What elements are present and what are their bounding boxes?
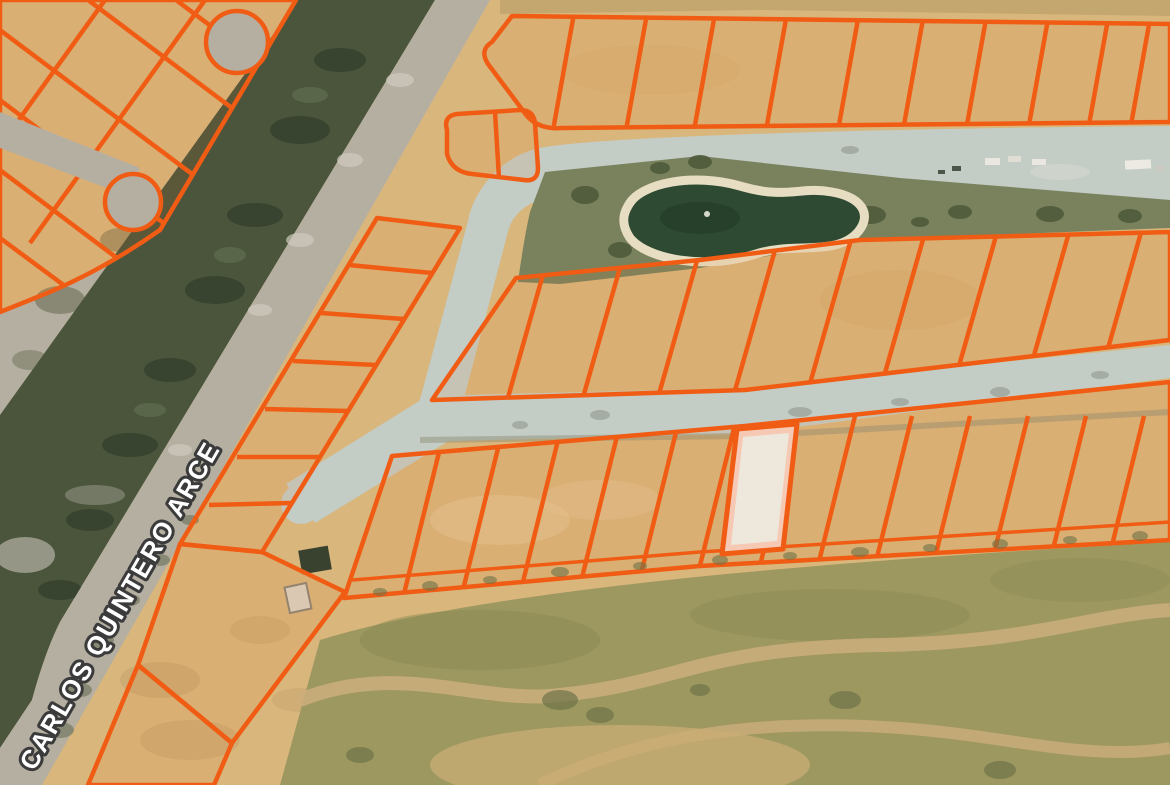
parcel-corner-lot[interactable] <box>446 110 538 180</box>
cul-de-sac-south <box>105 174 161 230</box>
cul-de-sac-north <box>206 11 268 73</box>
pond-deep-area <box>660 202 740 234</box>
selected-parcel[interactable] <box>722 424 797 554</box>
pond-bird-dot <box>704 211 710 217</box>
satellite-map-view[interactable]: CARLOS QUINTERO ARCE <box>0 0 1170 785</box>
parcel-block-top-row[interactable] <box>484 8 1170 136</box>
